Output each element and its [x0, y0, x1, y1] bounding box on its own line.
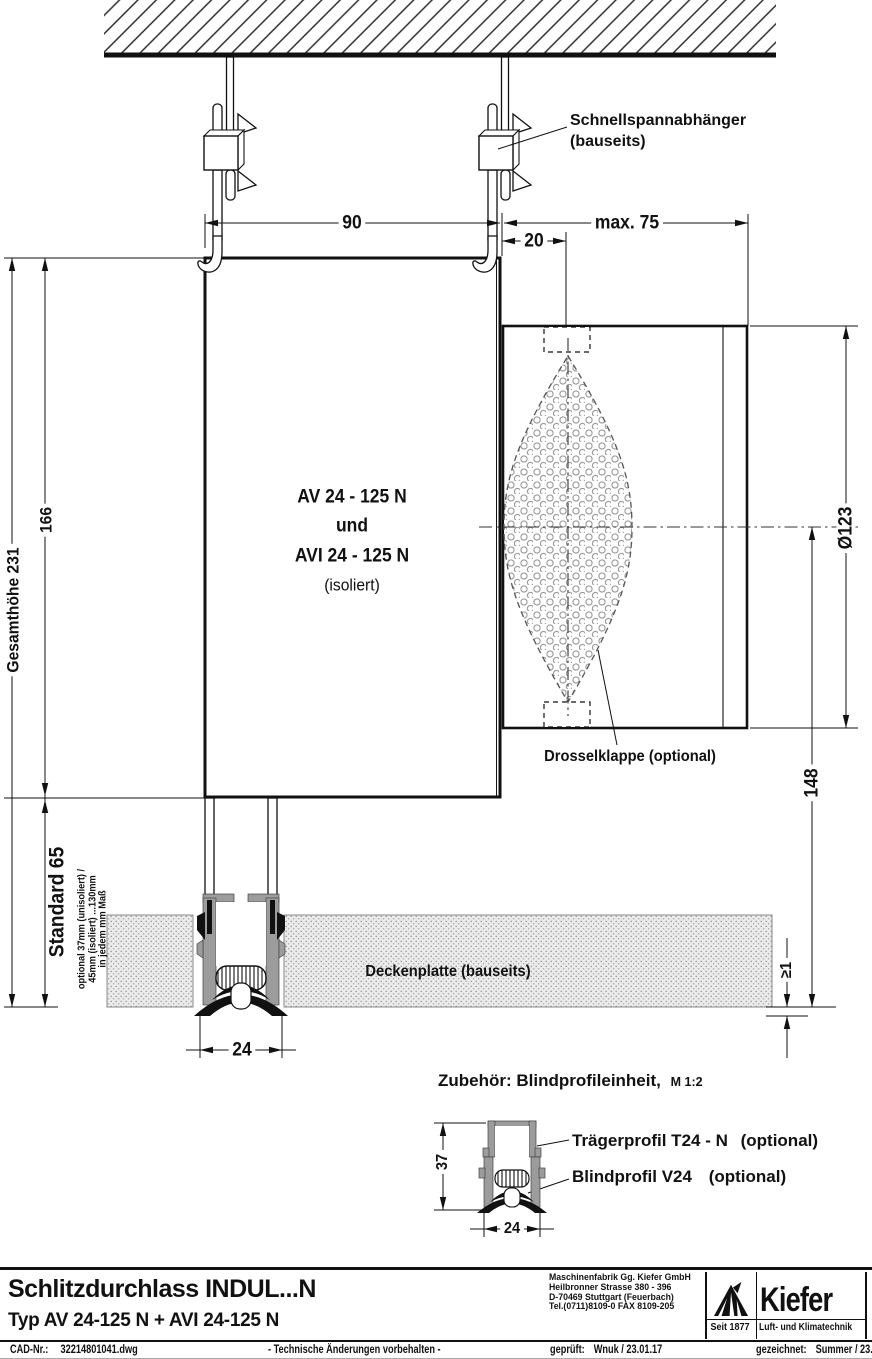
ceiling-slab-hatch: [104, 0, 776, 55]
carrier-profile-text: Trägerprofil T24 - N: [572, 1131, 728, 1150]
dim-total-height: Gesamthöhe 231: [5, 544, 22, 677]
blind-profile-optional: (optional): [709, 1167, 786, 1186]
checked-field: geprüft: Wnuk / 23.01.17: [550, 1344, 662, 1356]
dim-protrusion: ≥1: [779, 958, 795, 982]
accessory-heading-text: Zubehör: Blindprofileinheit,: [438, 1071, 661, 1090]
drawn-field: gezeichnet: Summer / 23.01.17: [756, 1344, 872, 1356]
checked-value: Wnuk / 23.01.17: [594, 1344, 663, 1356]
unit-type-line1: AV 24 - 125 N: [297, 488, 406, 507]
unit-type-line4: (isoliert): [324, 577, 380, 594]
quick-clamp-hanger-left: [198, 57, 256, 272]
unit-type-line3: AVI 24 - 125 N: [295, 547, 409, 566]
hanger-label-line1: Schnellspannabhänger: [570, 110, 746, 131]
damper-label: Drosselklappe (optional): [544, 749, 716, 765]
logo-divider-left: [705, 1272, 707, 1339]
company-line4: Tel.(0711)8109-0 FAX 8109-205: [549, 1302, 691, 1312]
drawing-subtitle: Typ AV 24-125 N + AVI 24-125 N: [8, 1310, 279, 1332]
logo-caption-rule-left: [705, 1319, 757, 1320]
titleblock-mid-rule: [0, 1340, 872, 1342]
cad-value: 32214801041.dwg: [61, 1344, 138, 1356]
dim-slot-width: 24: [229, 1041, 256, 1060]
brand-name: Kiefer: [760, 1283, 832, 1317]
brand-tagline: Luft- und Klimatechnik: [759, 1322, 852, 1333]
hanger-label: Schnellspannabhänger (bauseits): [570, 110, 746, 152]
blind-profile-label: Blindprofil V24 (optional): [572, 1168, 786, 1185]
dim-box-height: 166: [38, 503, 55, 536]
drawing-title: Schlitzdurchlass INDUL...N: [8, 1275, 316, 1304]
datasheet-page: Schnellspannabhänger (bauseits) 90 max. …: [0, 0, 872, 1359]
blind-profile-detail: [477, 1121, 547, 1213]
carrier-profile-label: Trägerprofil T24 - N (optional): [572, 1132, 818, 1149]
dim-hanger-spacing: 90: [339, 214, 366, 233]
duct-spigot: [479, 326, 858, 728]
dim-detail-height: 37: [435, 1150, 451, 1174]
optional-note-line3: in jedem mm Maß: [98, 869, 109, 989]
unit-type-line2: und: [336, 517, 368, 536]
dim-axis-to-ceiling: 148: [803, 765, 822, 802]
hanger-label-line2: (bauseits): [570, 131, 746, 152]
drawn-value: Summer / 23.01.17: [816, 1344, 872, 1356]
page-bottom-rule: [0, 1358, 872, 1359]
logo-border-right: [865, 1272, 867, 1339]
ceiling-plate-label: Deckenplatte (bauseits): [365, 964, 530, 980]
brand-since: Seit 1877: [710, 1322, 749, 1333]
accessory-scale: M 1:2: [671, 1075, 703, 1089]
checked-label: geprüft:: [550, 1344, 585, 1356]
slot-diffuser-profile: [194, 798, 288, 1016]
dim-axis-offset: 20: [521, 232, 548, 251]
cad-number-field: CAD-Nr.: 32214801041.dwg: [10, 1344, 138, 1356]
dim-duct-diameter: Ø123: [837, 503, 856, 553]
change-notice: - Technische Änderungen vorbehalten -: [268, 1344, 441, 1356]
logo-divider-mid: [756, 1272, 758, 1339]
accessory-heading: Zubehör: Blindprofileinheit, M 1:2: [438, 1072, 703, 1089]
titleblock-top-rule: [0, 1267, 872, 1270]
drawn-label: gezeichnet:: [756, 1344, 807, 1356]
dim-standard-height: Standard 65: [47, 843, 68, 961]
blind-profile-text: Blindprofil V24: [572, 1167, 692, 1186]
kiefer-logo-icon: [712, 1280, 750, 1316]
dim-detail-width: 24: [500, 1221, 524, 1237]
dim-max-offset: max. 75: [591, 214, 663, 233]
dim-optional-note: optional 37mm (unisoliert) / 45mm (isoli…: [77, 869, 109, 989]
optional-note-line1: optional 37mm (unisoliert) /: [77, 869, 88, 989]
carrier-profile-optional: (optional): [741, 1131, 818, 1150]
company-address: Maschinenfabrik Gg. Kiefer GmbH Heilbron…: [549, 1273, 691, 1312]
cad-label: CAD-Nr.:: [10, 1344, 48, 1356]
